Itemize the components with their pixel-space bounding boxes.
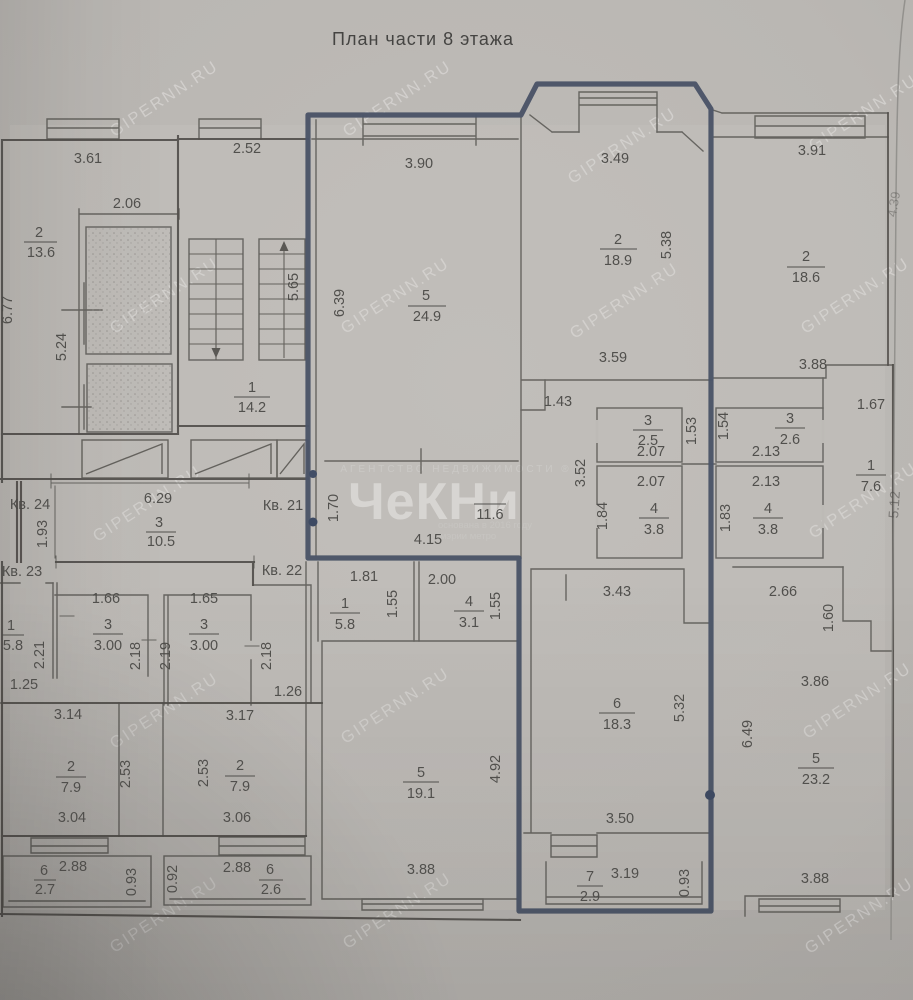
svg-text:2.88: 2.88 [223, 860, 251, 876]
svg-text:1.54: 1.54 [716, 412, 732, 440]
svg-text:2.66: 2.66 [769, 584, 797, 600]
svg-text:3.61: 3.61 [74, 151, 102, 167]
svg-text:6: 6 [266, 862, 274, 878]
svg-text:1.53: 1.53 [684, 417, 700, 445]
svg-text:3.90: 3.90 [405, 156, 433, 172]
svg-text:3.59: 3.59 [599, 350, 627, 366]
svg-text:1.55: 1.55 [385, 590, 401, 618]
svg-text:3.8: 3.8 [644, 522, 664, 538]
svg-text:3: 3 [200, 617, 208, 633]
svg-text:3.88: 3.88 [407, 862, 435, 878]
svg-text:5.38: 5.38 [659, 231, 675, 259]
svg-text:3.88: 3.88 [799, 357, 827, 373]
svg-text:3.17: 3.17 [226, 708, 254, 724]
svg-text:1: 1 [7, 618, 15, 634]
svg-text:6: 6 [613, 696, 621, 712]
svg-text:Кв. 23: Кв. 23 [2, 564, 42, 580]
svg-text:1.83: 1.83 [718, 504, 734, 532]
svg-text:2.19: 2.19 [158, 642, 174, 670]
svg-text:18.9: 18.9 [604, 253, 632, 269]
svg-text:2.18: 2.18 [128, 642, 144, 670]
svg-text:4: 4 [650, 501, 658, 517]
svg-text:3.1: 3.1 [459, 615, 479, 631]
svg-text:5.32: 5.32 [672, 694, 688, 722]
svg-text:2.07: 2.07 [637, 474, 665, 490]
svg-text:4.92: 4.92 [488, 755, 504, 783]
svg-text:2.9: 2.9 [580, 889, 600, 905]
svg-text:6.29: 6.29 [144, 491, 172, 507]
svg-text:3.8: 3.8 [758, 522, 778, 538]
svg-text:6.49: 6.49 [740, 720, 756, 748]
svg-text:0.92: 0.92 [165, 865, 181, 893]
svg-text:5: 5 [812, 751, 820, 767]
svg-text:1.93: 1.93 [35, 520, 51, 548]
svg-text:2.53: 2.53 [196, 759, 212, 787]
svg-text:5.24: 5.24 [54, 333, 70, 361]
svg-text:3: 3 [104, 617, 112, 633]
svg-text:18.6: 18.6 [792, 270, 820, 286]
svg-text:3.91: 3.91 [798, 143, 826, 159]
svg-text:3.49: 3.49 [601, 151, 629, 167]
svg-text:2.6: 2.6 [261, 882, 281, 898]
svg-text:2.07: 2.07 [637, 444, 665, 460]
svg-text:2: 2 [802, 249, 810, 265]
svg-text:24.9: 24.9 [413, 309, 441, 325]
svg-text:4: 4 [764, 501, 772, 517]
svg-text:2.88: 2.88 [59, 859, 87, 875]
svg-text:10.5: 10.5 [147, 534, 175, 550]
svg-text:3.00: 3.00 [190, 638, 218, 654]
svg-text:1.84: 1.84 [595, 502, 611, 530]
svg-text:4: 4 [465, 594, 473, 610]
svg-text:0.93: 0.93 [677, 869, 693, 897]
svg-text:Кв. 22: Кв. 22 [262, 563, 302, 579]
svg-text:6.77: 6.77 [0, 296, 16, 324]
svg-text:3.14: 3.14 [54, 707, 82, 723]
svg-text:5: 5 [422, 288, 430, 304]
svg-text:3.19: 3.19 [611, 866, 639, 882]
svg-text:2.13: 2.13 [752, 444, 780, 460]
svg-text:18.3: 18.3 [603, 717, 631, 733]
svg-text:1.60: 1.60 [821, 604, 837, 632]
svg-text:2: 2 [67, 759, 75, 775]
svg-text:1: 1 [341, 596, 349, 612]
svg-text:7.6: 7.6 [861, 479, 881, 495]
svg-text:2.18: 2.18 [259, 642, 275, 670]
svg-text:2.53: 2.53 [118, 760, 134, 788]
svg-text:2.13: 2.13 [752, 474, 780, 490]
svg-text:2.00: 2.00 [428, 572, 456, 588]
svg-text:4.15: 4.15 [414, 532, 442, 548]
svg-text:1.67: 1.67 [857, 397, 885, 413]
svg-text:3.43: 3.43 [603, 584, 631, 600]
svg-text:3: 3 [644, 413, 652, 429]
svg-text:3.00: 3.00 [94, 638, 122, 654]
svg-text:7.9: 7.9 [230, 779, 250, 795]
svg-text:1.70: 1.70 [326, 494, 342, 522]
svg-text:6.39: 6.39 [332, 289, 348, 317]
svg-text:Кв. 21: Кв. 21 [263, 498, 303, 514]
svg-text:2: 2 [35, 225, 43, 241]
svg-text:1.55: 1.55 [488, 592, 504, 620]
svg-text:1.65: 1.65 [190, 591, 218, 607]
svg-text:3: 3 [786, 411, 794, 427]
svg-text:6: 6 [40, 863, 48, 879]
svg-text:1: 1 [867, 458, 875, 474]
svg-text:2: 2 [614, 232, 622, 248]
svg-text:5.12: 5.12 [885, 490, 903, 519]
svg-text:2.52: 2.52 [233, 141, 261, 157]
svg-text:5.8: 5.8 [3, 638, 23, 654]
svg-text:3.88: 3.88 [801, 871, 829, 887]
svg-text:7: 7 [586, 869, 594, 885]
svg-text:1.26: 1.26 [274, 684, 302, 700]
svg-text:3.50: 3.50 [606, 811, 634, 827]
svg-text:3.52: 3.52 [573, 459, 589, 487]
svg-text:3: 3 [155, 515, 163, 531]
svg-text:14.2: 14.2 [238, 400, 266, 416]
svg-text:5.8: 5.8 [335, 617, 355, 633]
svg-text:0.93: 0.93 [124, 868, 140, 896]
svg-text:1.25: 1.25 [10, 677, 38, 693]
svg-text:1.43: 1.43 [544, 394, 572, 410]
svg-text:1.81: 1.81 [350, 569, 378, 585]
svg-text:7.9: 7.9 [61, 780, 81, 796]
svg-text:2.7: 2.7 [35, 882, 55, 898]
svg-text:2.6: 2.6 [780, 432, 800, 448]
svg-text:11.6: 11.6 [476, 507, 503, 523]
svg-text:1: 1 [248, 380, 256, 396]
svg-text:23.2: 23.2 [802, 772, 830, 788]
svg-text:3.06: 3.06 [223, 810, 251, 826]
svg-text:5: 5 [417, 765, 425, 781]
svg-text:5.65: 5.65 [286, 273, 302, 301]
svg-text:2.21: 2.21 [32, 641, 48, 669]
svg-text:3.86: 3.86 [801, 674, 829, 690]
svg-text:2: 2 [236, 758, 244, 774]
svg-text:Кв. 24: Кв. 24 [10, 497, 50, 513]
svg-text:2.06: 2.06 [113, 196, 141, 212]
svg-text:3.04: 3.04 [58, 810, 86, 826]
svg-text:13.6: 13.6 [27, 245, 55, 261]
svg-text:19.1: 19.1 [407, 786, 435, 802]
svg-text:1.66: 1.66 [92, 591, 120, 607]
